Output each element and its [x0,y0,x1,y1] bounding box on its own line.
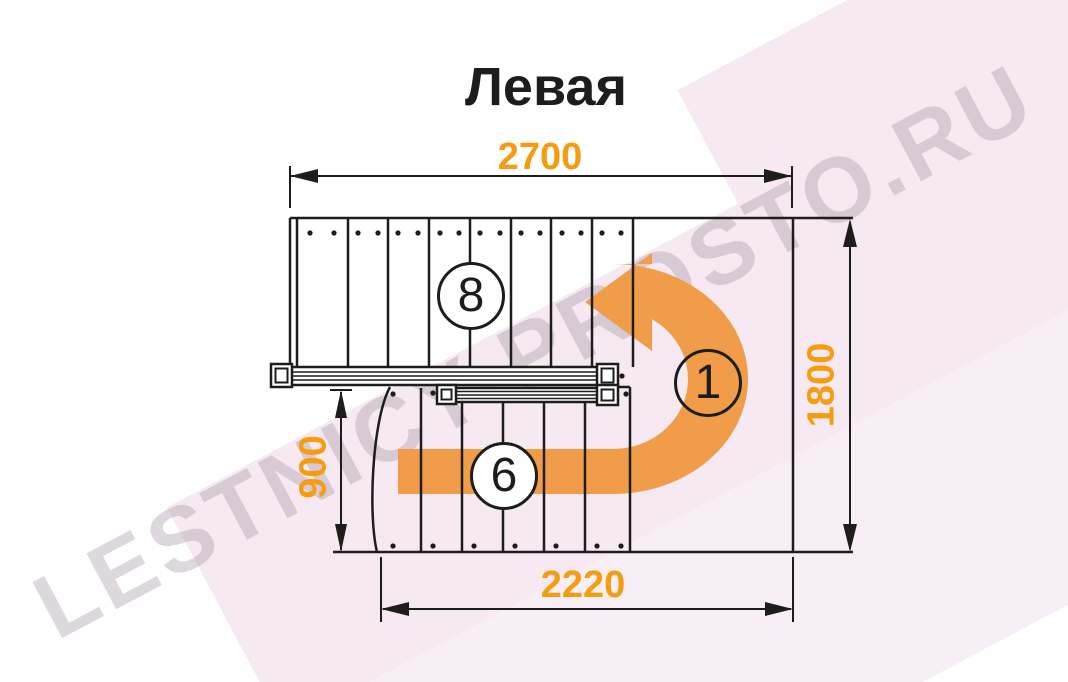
dimension-label-left: 900 [293,435,336,498]
diagram-title: Левая [346,56,746,118]
step-count-marker-lower-flight: 6 [470,442,538,510]
lower-flight-count: 6 [491,452,518,500]
upper-tread-beam [271,364,618,387]
step-count-marker-upper-flight: 8 [437,262,505,330]
dimension-label-top: 2700 [430,136,650,179]
staircase-diagram-page: LESTNICY-PROSTO.RU [0,0,1068,682]
upper-flight-count: 8 [458,272,485,320]
lower-tread-beam [437,385,618,405]
lower-flight-curved-step [372,387,390,552]
turn-number: 1 [695,359,722,407]
dimension-label-right: 1800 [801,343,844,428]
dimension-label-bottom: 2220 [473,564,693,607]
turn-marker: 1 [674,349,742,417]
